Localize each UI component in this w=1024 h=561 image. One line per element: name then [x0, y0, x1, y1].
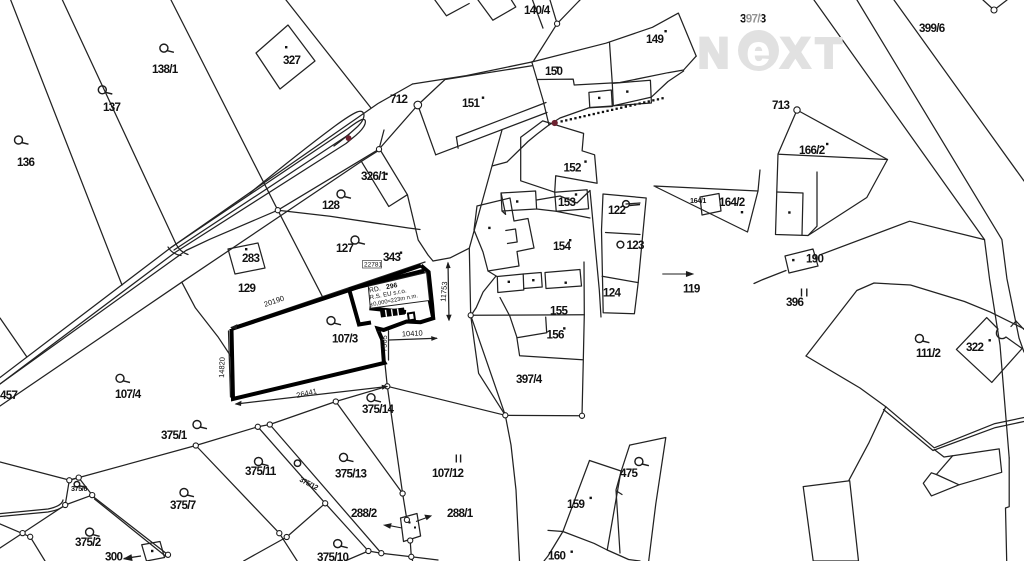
- svg-text:322: 322: [966, 341, 983, 354]
- svg-text:11753: 11753: [439, 281, 450, 302]
- svg-text:327: 327: [283, 54, 300, 67]
- svg-text:713: 713: [772, 99, 790, 112]
- svg-text:399/6: 399/6: [919, 22, 946, 35]
- svg-text:123: 123: [627, 239, 645, 252]
- svg-text:107/12: 107/12: [432, 467, 464, 480]
- svg-text:152: 152: [564, 162, 581, 175]
- svg-text:137: 137: [103, 101, 120, 114]
- svg-text:107/3: 107/3: [332, 333, 359, 346]
- svg-text:375/13: 375/13: [335, 468, 368, 481]
- svg-text:119: 119: [683, 283, 701, 296]
- svg-text:151: 151: [462, 97, 480, 110]
- svg-text:155: 155: [550, 305, 568, 318]
- svg-text:149: 149: [646, 33, 664, 46]
- svg-text:375/11: 375/11: [245, 465, 277, 478]
- svg-text:154: 154: [553, 240, 571, 253]
- svg-text:156: 156: [547, 329, 565, 342]
- svg-text:14820: 14820: [217, 357, 227, 378]
- svg-text:326/1: 326/1: [361, 170, 388, 183]
- svg-text:153: 153: [558, 196, 576, 209]
- svg-text:164/2: 164/2: [719, 196, 745, 209]
- svg-text:375/10: 375/10: [317, 551, 349, 561]
- svg-text:164/1: 164/1: [690, 196, 706, 205]
- svg-text:X: X: [781, 29, 810, 77]
- svg-text:128: 128: [322, 199, 340, 212]
- svg-text:150: 150: [545, 65, 562, 78]
- svg-text:375/2: 375/2: [75, 536, 101, 549]
- svg-text:107/4: 107/4: [115, 388, 142, 401]
- svg-text:457: 457: [0, 389, 17, 402]
- svg-text:10410: 10410: [402, 328, 423, 338]
- svg-text:140/4: 140/4: [524, 4, 551, 17]
- svg-text:N: N: [698, 29, 729, 77]
- svg-text:397/4: 397/4: [516, 373, 543, 386]
- svg-text:111/2: 111/2: [916, 347, 940, 360]
- svg-text:288/1: 288/1: [447, 507, 474, 520]
- svg-text:343: 343: [383, 251, 401, 264]
- svg-text:712: 712: [390, 93, 407, 106]
- svg-text:160: 160: [548, 550, 565, 561]
- svg-text:396: 396: [786, 296, 804, 309]
- svg-text:288/2: 288/2: [351, 507, 377, 520]
- svg-text:300: 300: [105, 551, 122, 561]
- svg-text:159: 159: [567, 498, 585, 511]
- svg-text:190: 190: [806, 253, 823, 266]
- svg-text:166/2: 166/2: [799, 144, 825, 157]
- svg-text:136: 136: [17, 156, 35, 169]
- svg-text:e: e: [747, 27, 770, 74]
- svg-text:375/7: 375/7: [170, 499, 196, 512]
- svg-text:138/1: 138/1: [152, 63, 179, 76]
- svg-text:22781: 22781: [364, 262, 382, 269]
- svg-text:375/14: 375/14: [362, 403, 395, 416]
- svg-text:T: T: [816, 29, 842, 77]
- svg-text:475: 475: [620, 467, 638, 480]
- svg-text:283: 283: [242, 252, 260, 265]
- svg-text:375/1: 375/1: [161, 429, 188, 442]
- svg-text:375/6: 375/6: [71, 484, 87, 493]
- svg-text:124: 124: [603, 287, 621, 300]
- svg-text:129: 129: [238, 282, 256, 295]
- svg-text:7505: 7505: [380, 335, 390, 352]
- svg-text:122: 122: [608, 204, 625, 217]
- svg-text:127: 127: [336, 242, 353, 255]
